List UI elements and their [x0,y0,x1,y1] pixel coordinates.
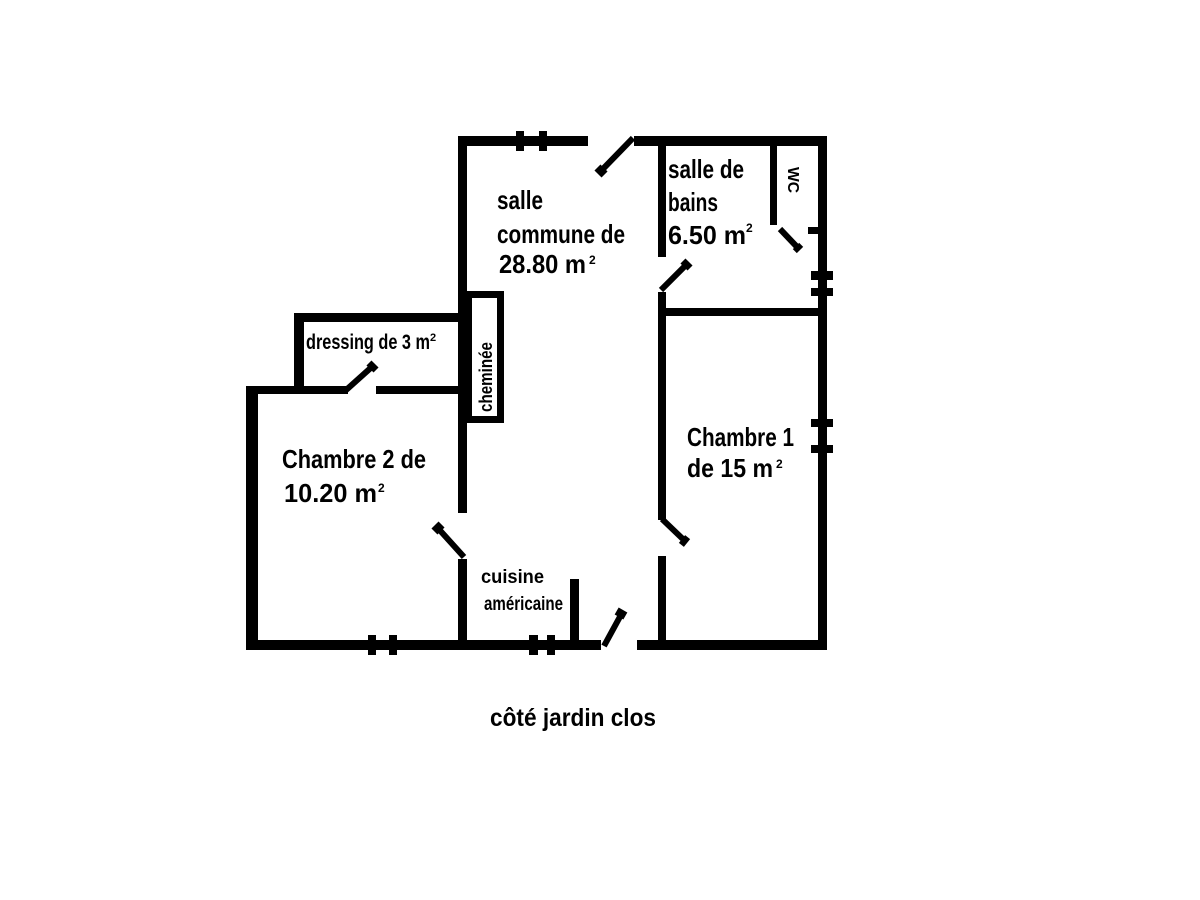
svg-text:américaine: américaine [484,594,563,615]
svg-text:2: 2 [746,221,753,235]
svg-text:cheminée: cheminée [476,342,496,412]
svg-text:Chambre 1: Chambre 1 [687,422,794,452]
svg-text:10.20 m: 10.20 m [284,478,377,508]
svg-text:côté jardin clos: côté jardin clos [490,704,656,732]
svg-text:bains: bains [668,187,718,217]
svg-text:Chambre 2 de: Chambre 2 de [282,444,426,474]
svg-text:de 15 m: de 15 m [687,453,773,483]
svg-text:28.80 m: 28.80 m [499,249,586,279]
svg-text:commune de: commune de [497,219,625,249]
svg-text:WC: WC [784,167,801,193]
svg-text:2: 2 [776,457,783,471]
svg-text:6.50 m: 6.50 m [668,220,746,250]
svg-text:2: 2 [378,481,385,495]
svg-text:salle de: salle de [668,154,744,184]
svg-text:2: 2 [589,253,596,267]
svg-text:cuisine: cuisine [481,567,544,588]
svg-text:2: 2 [430,332,436,344]
svg-text:salle: salle [497,185,543,215]
svg-text:dressing de 3 m: dressing de 3 m [306,331,430,354]
